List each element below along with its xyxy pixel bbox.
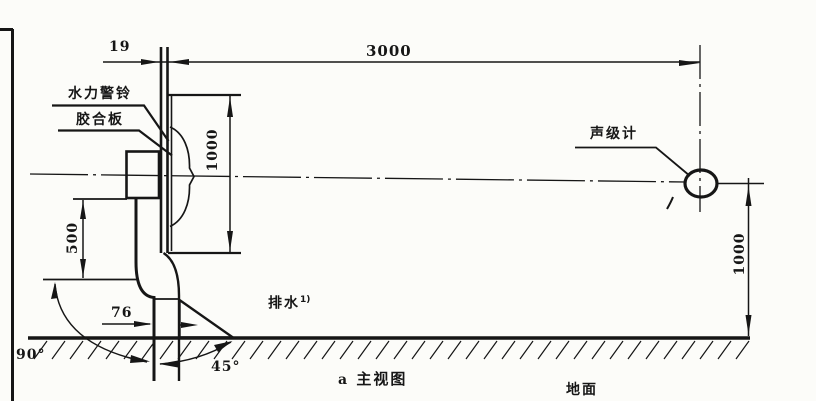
- dim-pipe-size: 76: [111, 306, 132, 320]
- meter-height-bottom-arrow: [746, 315, 752, 335]
- drawing-linework: [0, 0, 816, 401]
- drain-cone: [180, 300, 234, 338]
- bell-dome-outline: [170, 127, 194, 227]
- label-sound-level-meter: 声级计: [590, 127, 638, 141]
- label-plywood: 胶合板: [76, 113, 124, 127]
- outlet-dim-top-arrow: [80, 201, 86, 219]
- meter-height-top-arrow: [746, 186, 752, 206]
- outlet-dim-bottom-arrow: [80, 259, 86, 277]
- dim19-left-arrow: [141, 59, 159, 65]
- label-drain-note-ref: 1): [300, 295, 310, 305]
- figure-caption-letter: a: [338, 372, 348, 388]
- horizontal-center-line: [30, 174, 686, 182]
- label-drain: 排水1): [268, 296, 310, 311]
- pipe-dim-arrow-left: [134, 321, 152, 327]
- meter-label-leader: [575, 148, 690, 177]
- technical-drawing-page: 19 3000 1000 500 76 90° 45° 1000 水力警铃 胶合…: [0, 0, 816, 401]
- dim-elbow-angle: 90°: [16, 348, 45, 362]
- label-water-alarm-bell: 水力警铃: [68, 87, 132, 101]
- figure-caption: a 主视图: [338, 372, 407, 387]
- dim-bell-height: 1000: [206, 129, 220, 172]
- dim-drain-angle: 45°: [211, 360, 240, 374]
- ground-hatching: [34, 341, 749, 359]
- outlet-dim-extension-lines: [43, 199, 137, 280]
- pipe-outer-wall: [136, 198, 154, 381]
- elbow-angle-arc: [55, 284, 147, 362]
- label-ground: 地面: [566, 383, 598, 397]
- dim3000-left-arrow: [169, 59, 189, 65]
- dim-meter-distance: 3000: [366, 44, 412, 59]
- drain-angle-arrow-left: [159, 361, 178, 368]
- dim-outlet-drop: 500: [66, 222, 80, 254]
- sound-meter-circle: [685, 170, 717, 197]
- page-border-line: [0, 29, 13, 401]
- figure-caption-text: 主视图: [356, 370, 407, 388]
- bell-dim-top-arrow: [227, 97, 233, 117]
- elbow-angle-arrow-top: [51, 282, 58, 299]
- meter-tick-mark: [667, 197, 673, 209]
- dim3000-right-arrow: [679, 60, 700, 66]
- label-drain-text: 排水: [268, 296, 300, 312]
- dim-board-thickness: 19: [109, 40, 130, 54]
- bell-dim-bottom-arrow: [227, 231, 233, 251]
- dim-meter-height: 1000: [733, 233, 747, 276]
